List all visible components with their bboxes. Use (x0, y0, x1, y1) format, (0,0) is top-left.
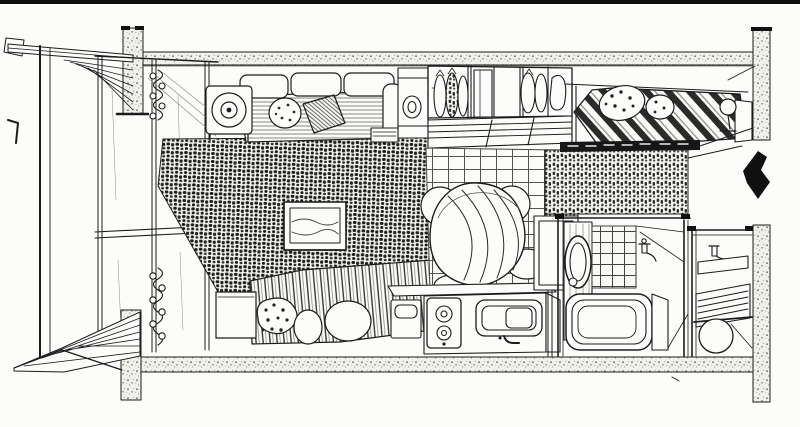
hanging-clothes (550, 75, 566, 110)
stove (427, 298, 461, 348)
nightstand (216, 292, 256, 338)
top-wall-band (143, 52, 753, 65)
pillow (325, 301, 371, 341)
tv (284, 202, 346, 250)
bottom-right-column (753, 225, 770, 402)
tub-ledge (652, 294, 668, 350)
floor-plan-drawing (0, 0, 800, 427)
hanging-clothes (521, 73, 535, 113)
dining-table (430, 183, 525, 286)
spotted-pillow (646, 95, 674, 119)
closet-base-slats (428, 116, 572, 148)
bedside-lamp (720, 99, 736, 115)
hanging-clothes (535, 74, 547, 112)
hanging-clothes (434, 75, 446, 117)
round-basin (699, 319, 733, 353)
spotted-cushion (257, 298, 297, 334)
bed-base-stripe (560, 140, 700, 152)
sketch-canvas (0, 0, 800, 427)
sofa-back-cushion (291, 73, 341, 96)
hanging-clothes (458, 76, 468, 116)
top-border-line (0, 0, 800, 4)
hanging-clothes-dark (446, 73, 458, 117)
bottom-wall-band (141, 357, 755, 372)
wall-tiles (592, 226, 636, 288)
top-left-column (123, 28, 143, 114)
sink (476, 300, 542, 343)
bedside-table (735, 100, 752, 142)
bathtub (566, 294, 652, 350)
top-right-column (753, 30, 770, 140)
pillow (294, 310, 322, 344)
closet-door (474, 70, 492, 117)
round-side-table (206, 86, 252, 141)
throw-pillow (269, 98, 301, 128)
